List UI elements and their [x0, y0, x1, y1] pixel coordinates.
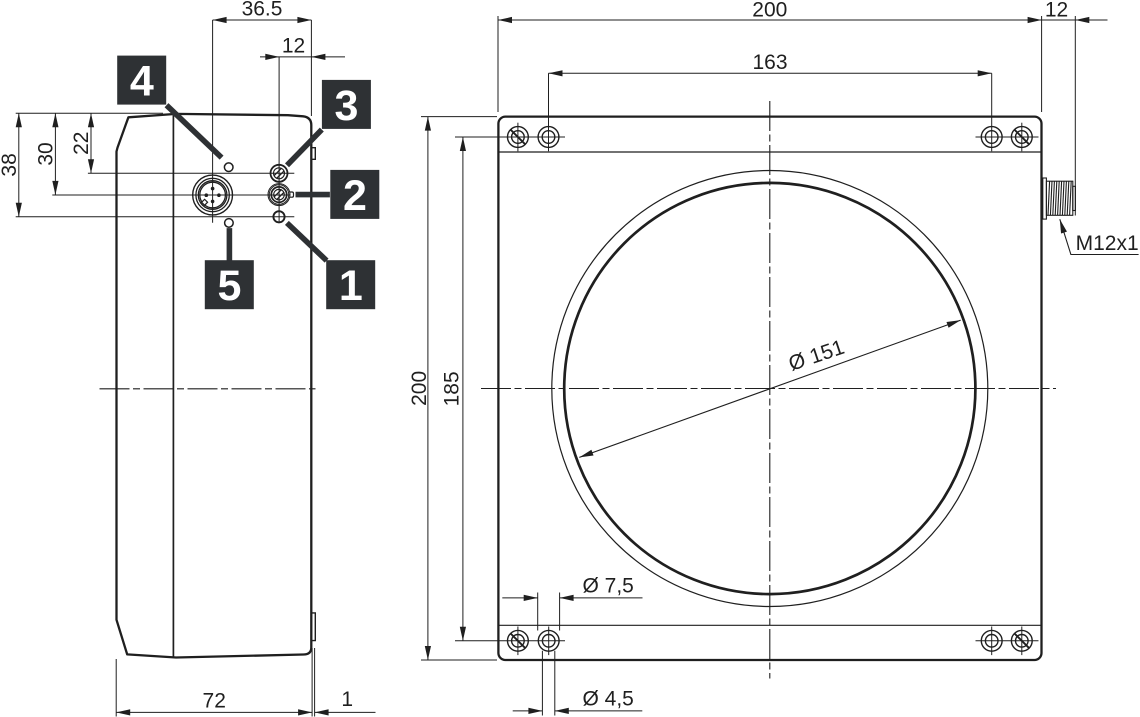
svg-text:5: 5 — [217, 262, 241, 310]
svg-text:185: 185 — [441, 371, 464, 406]
svg-text:30: 30 — [34, 142, 57, 165]
svg-text:36.5: 36.5 — [242, 0, 283, 20]
svg-text:12: 12 — [282, 34, 305, 57]
svg-text:38: 38 — [0, 153, 21, 176]
svg-text:1: 1 — [341, 688, 353, 711]
svg-text:12: 12 — [1045, 0, 1068, 21]
svg-text:M12x1: M12x1 — [1076, 232, 1139, 255]
svg-text:Ø 4,5: Ø 4,5 — [583, 687, 634, 710]
svg-text:200: 200 — [408, 371, 431, 406]
svg-text:200: 200 — [752, 0, 787, 21]
svg-text:3: 3 — [335, 82, 359, 130]
svg-text:1: 1 — [339, 262, 363, 310]
svg-text:2: 2 — [343, 172, 367, 220]
svg-text:4: 4 — [130, 58, 154, 106]
svg-text:72: 72 — [203, 690, 226, 713]
svg-text:163: 163 — [752, 51, 787, 74]
svg-text:22: 22 — [70, 132, 93, 155]
svg-text:Ø 7,5: Ø 7,5 — [583, 574, 634, 597]
